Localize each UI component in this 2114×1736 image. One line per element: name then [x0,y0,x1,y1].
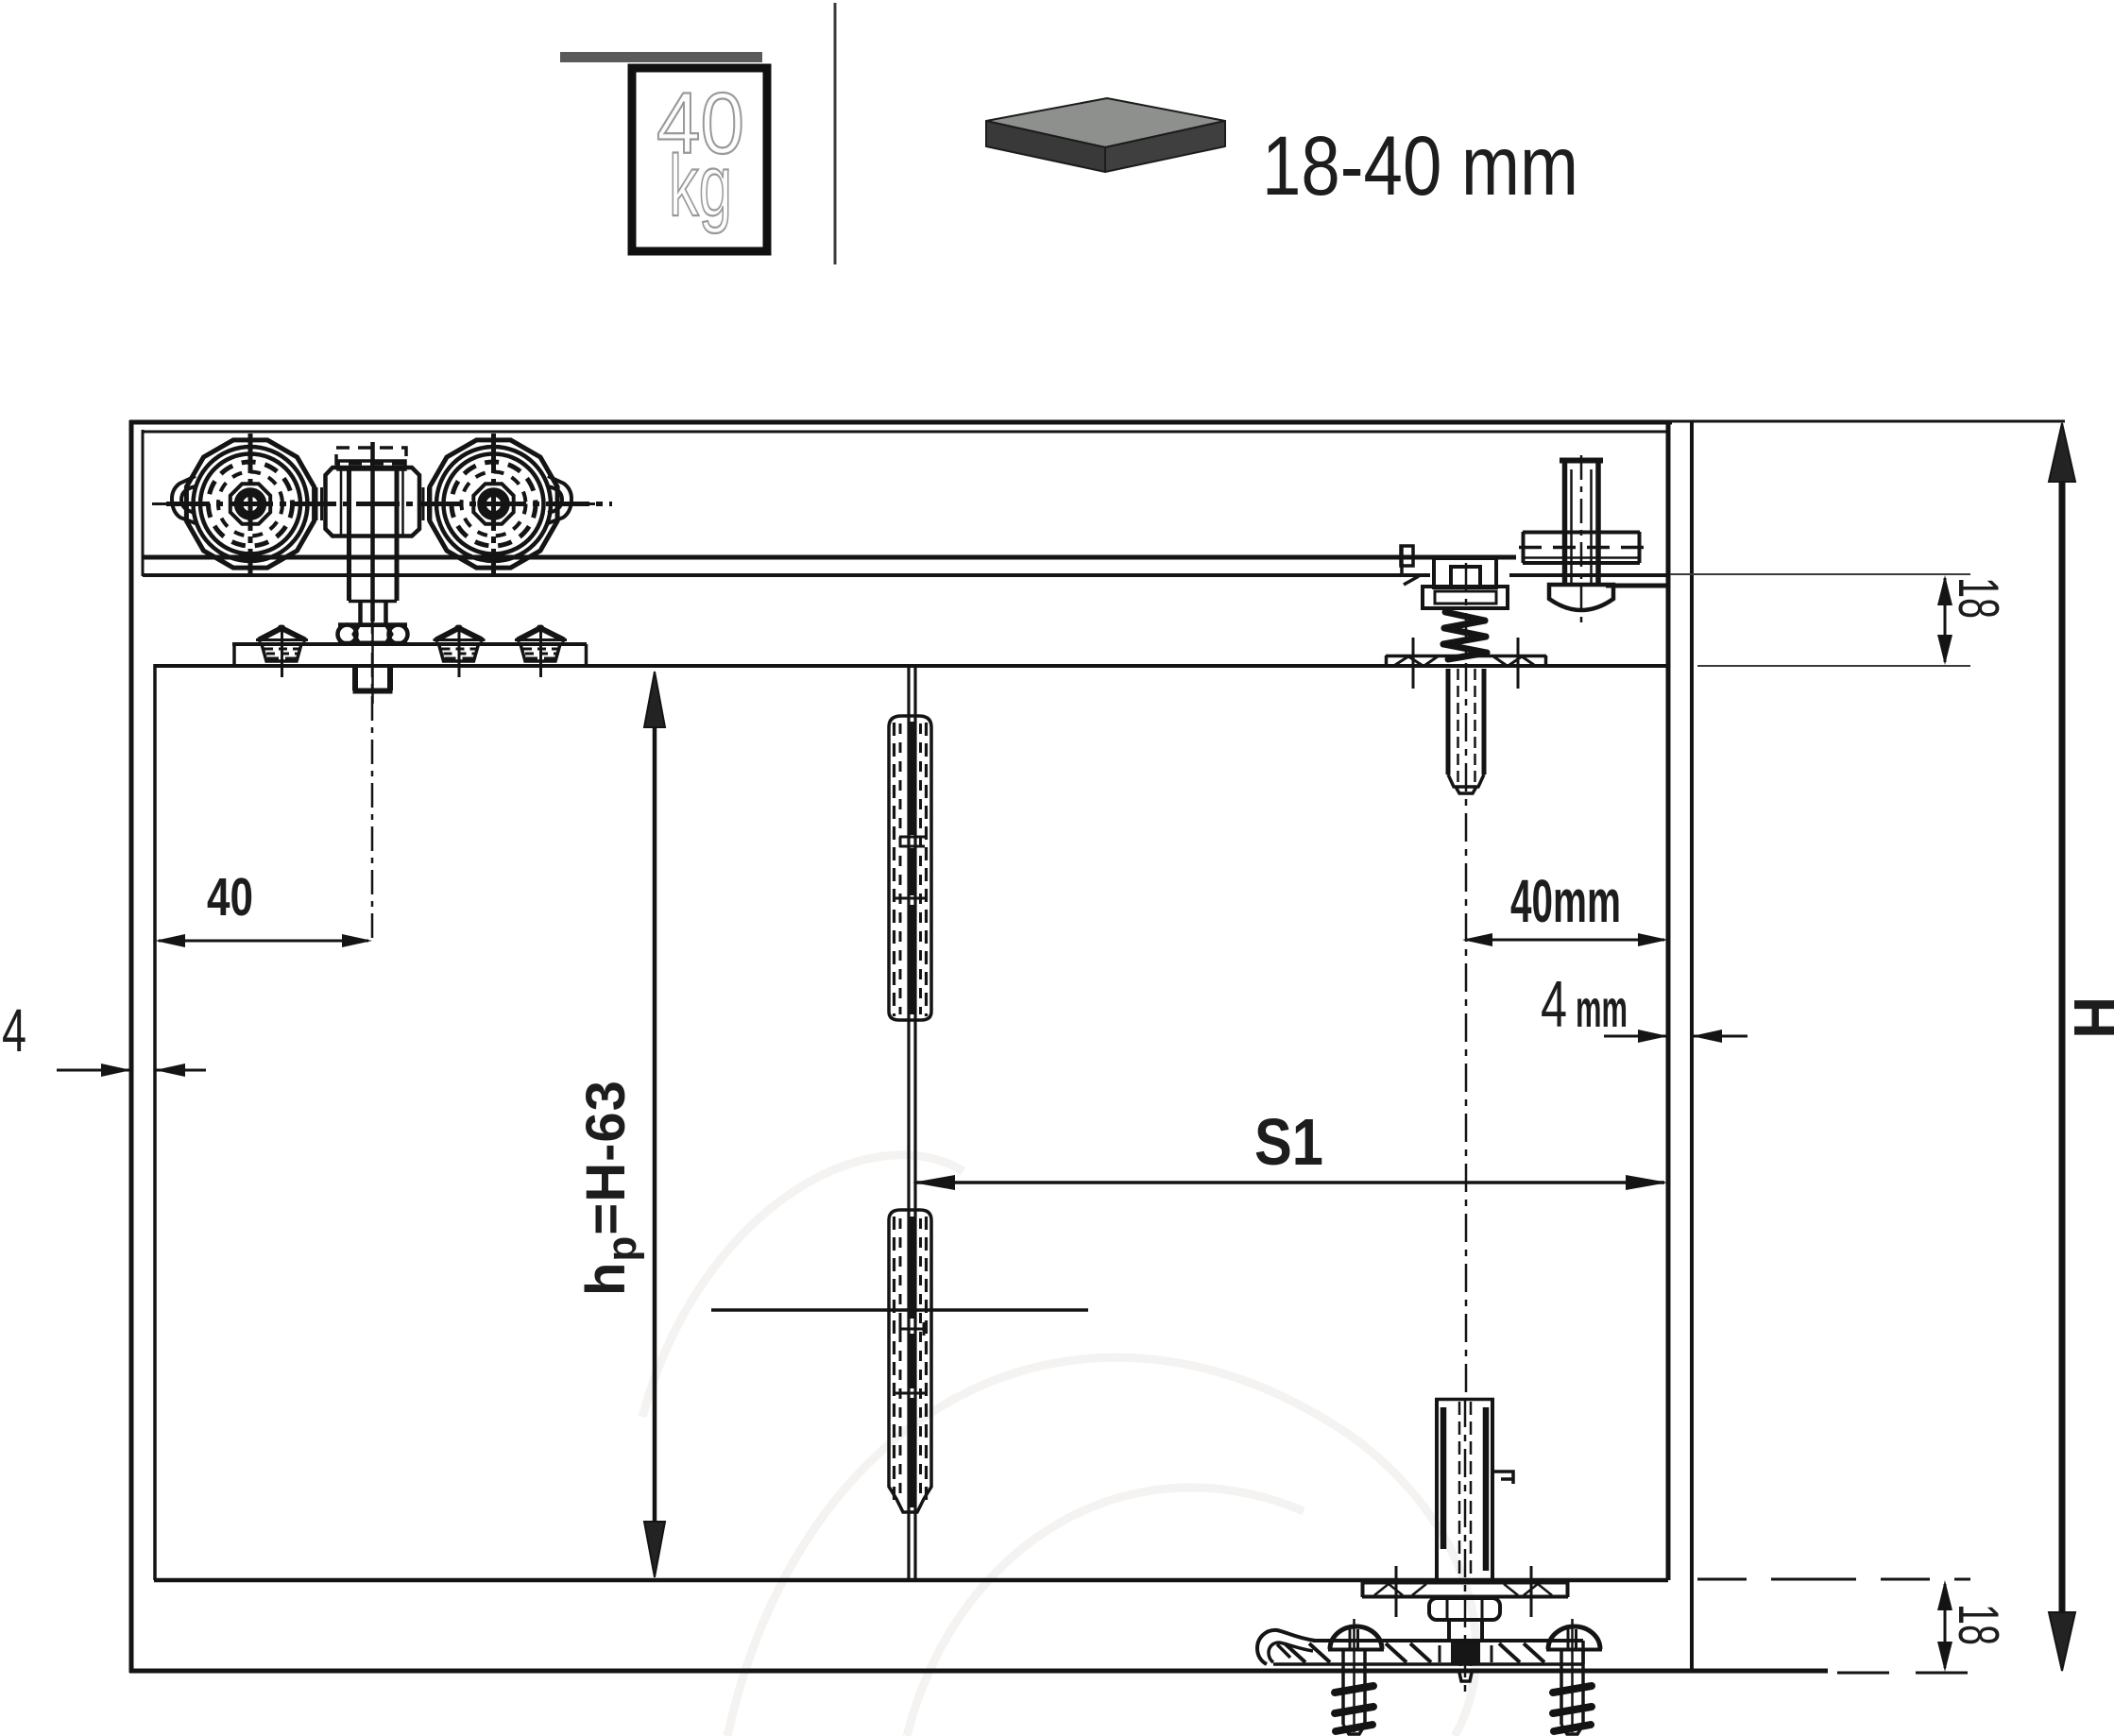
svg-text:hp=H-63: hp=H-63 [575,1080,645,1296]
svg-text:4: 4 [2,996,26,1064]
svg-text:mm: mm [1576,979,1628,1038]
svg-text:H: H [2061,996,2114,1039]
svg-text:kg: kg [669,138,732,234]
svg-text:18: 18 [1947,577,2010,619]
svg-text:40mm: 40mm [1510,867,1621,935]
svg-text:S1: S1 [1254,1105,1323,1179]
svg-text:40: 40 [207,867,253,928]
svg-text:18-40 mm: 18-40 mm [1262,118,1578,213]
svg-text:4: 4 [1541,967,1567,1041]
svg-text:18: 18 [1947,1604,2010,1645]
